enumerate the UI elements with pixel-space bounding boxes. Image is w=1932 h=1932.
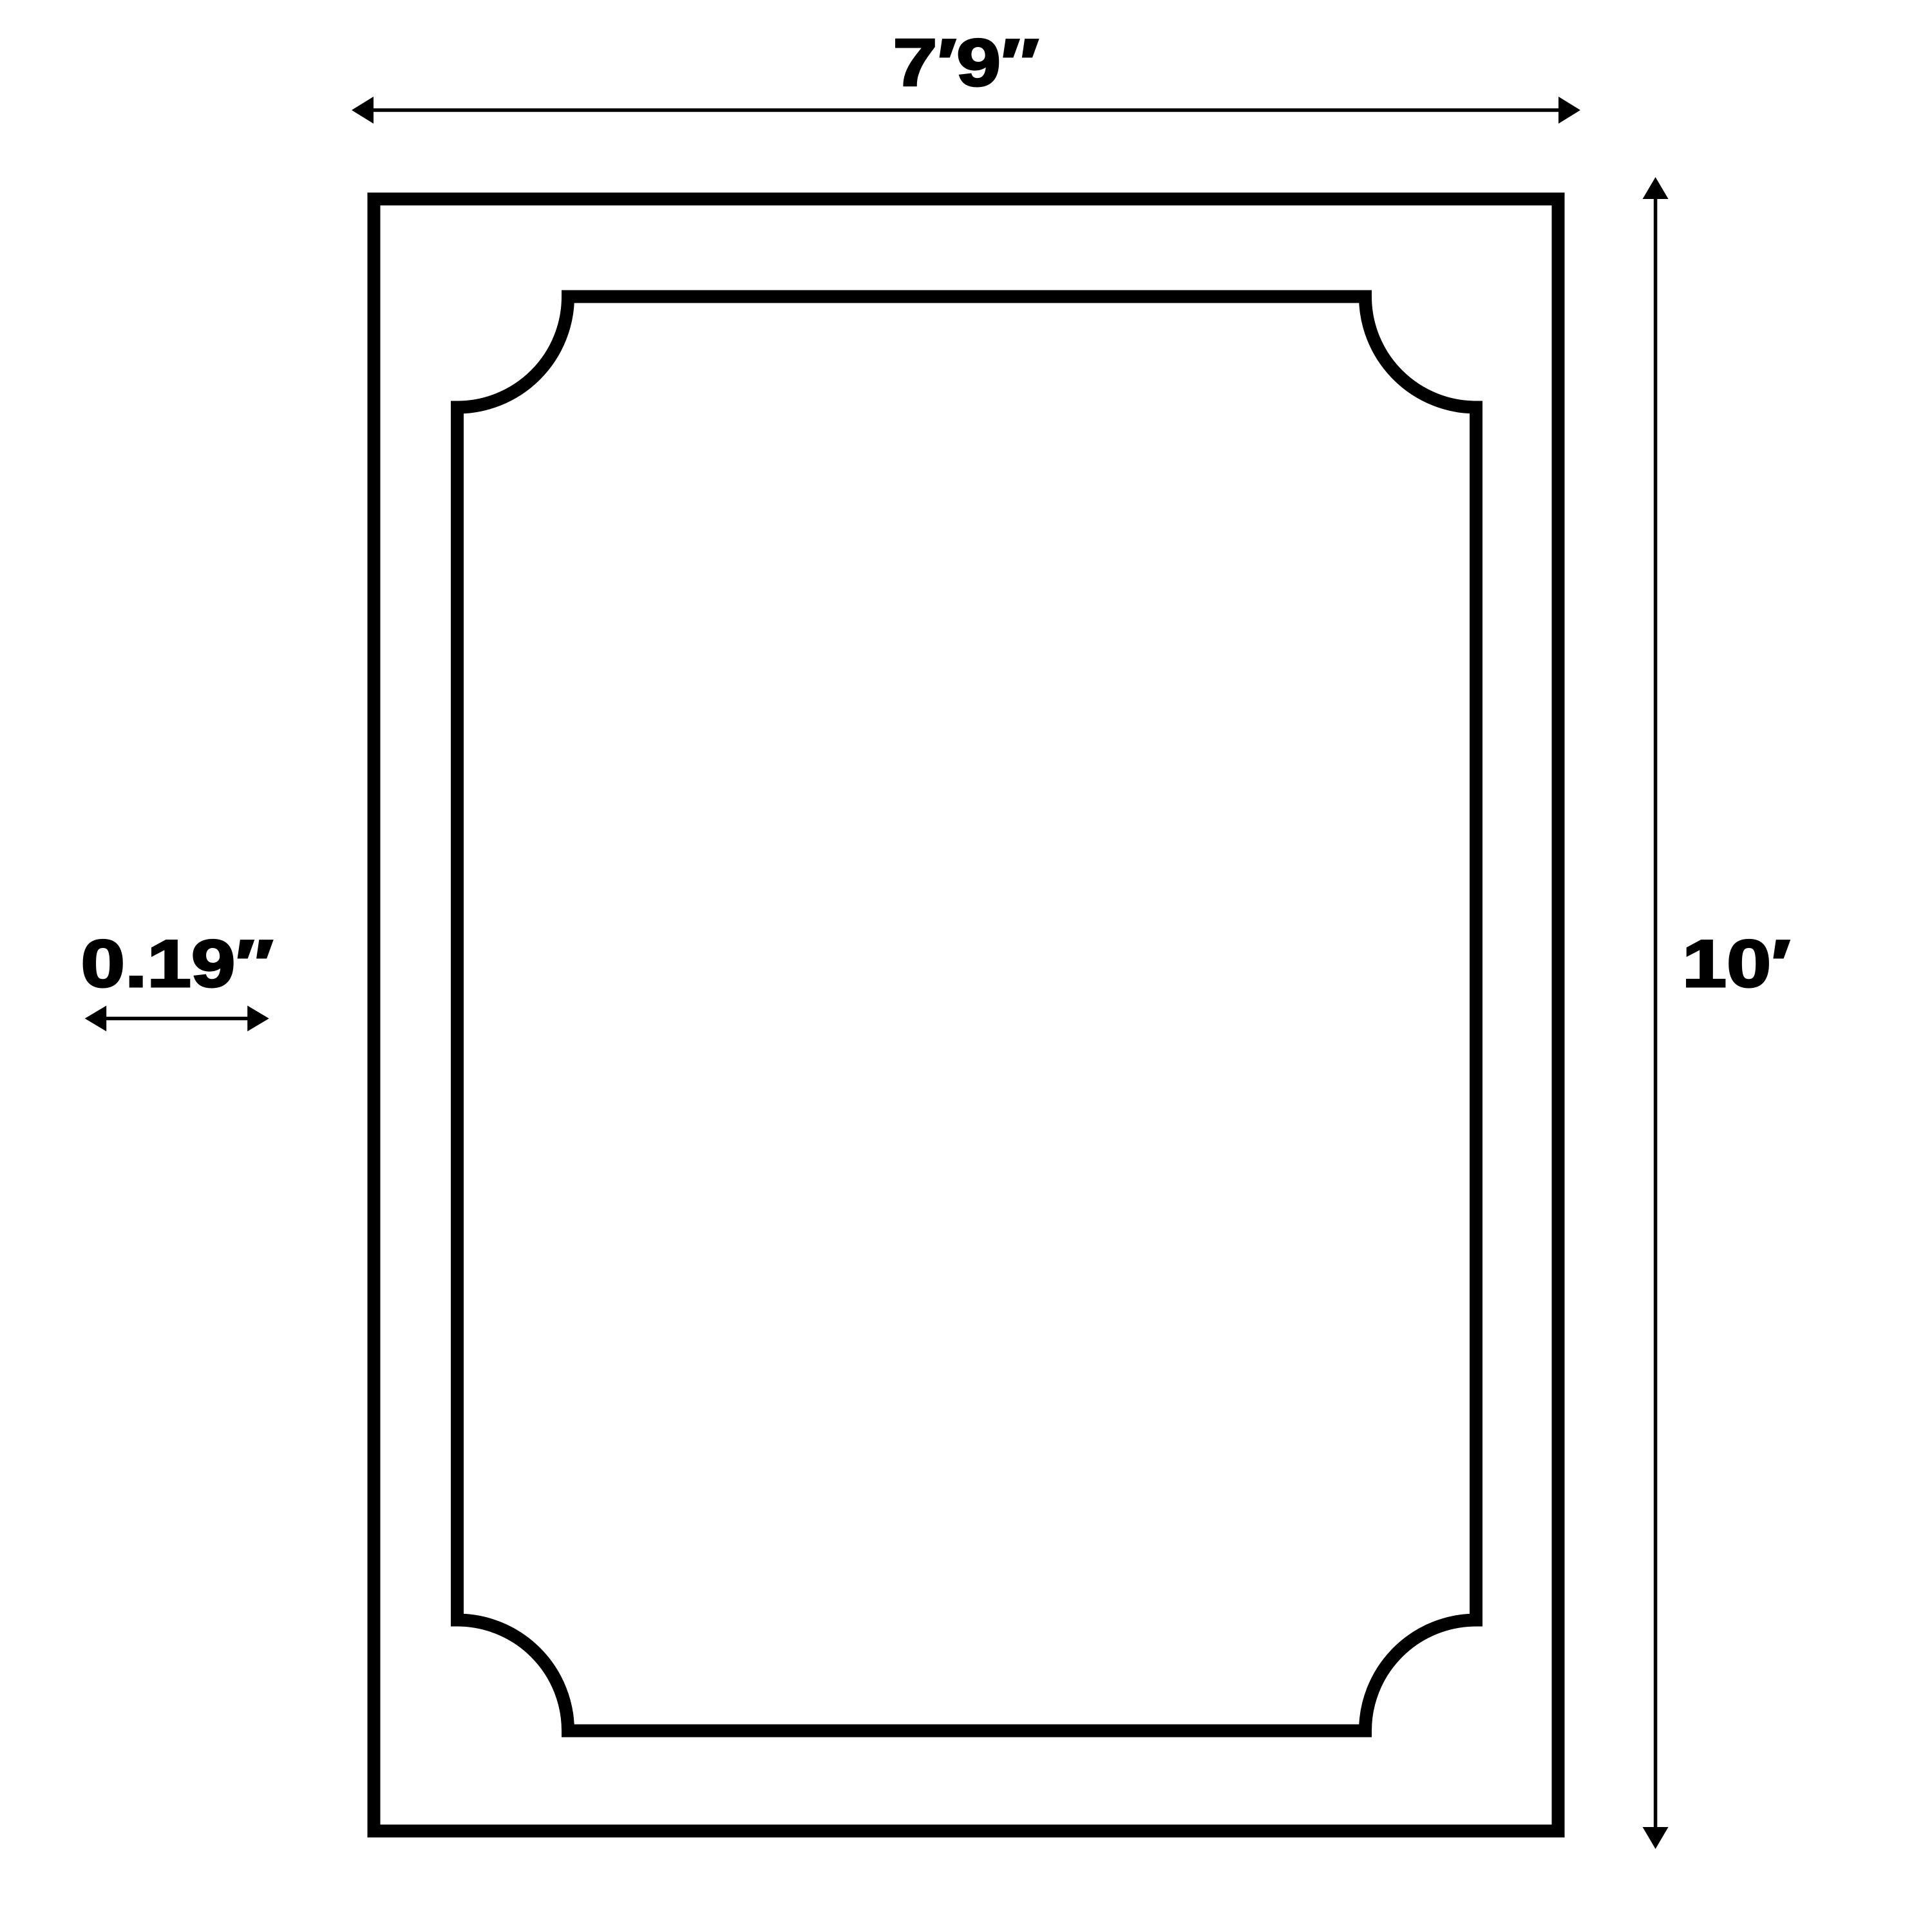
svg-text:0.19″: 0.19″ xyxy=(81,927,274,1001)
svg-text:10′: 10′ xyxy=(1682,927,1790,1001)
svg-text:7′9″: 7′9″ xyxy=(893,26,1039,100)
